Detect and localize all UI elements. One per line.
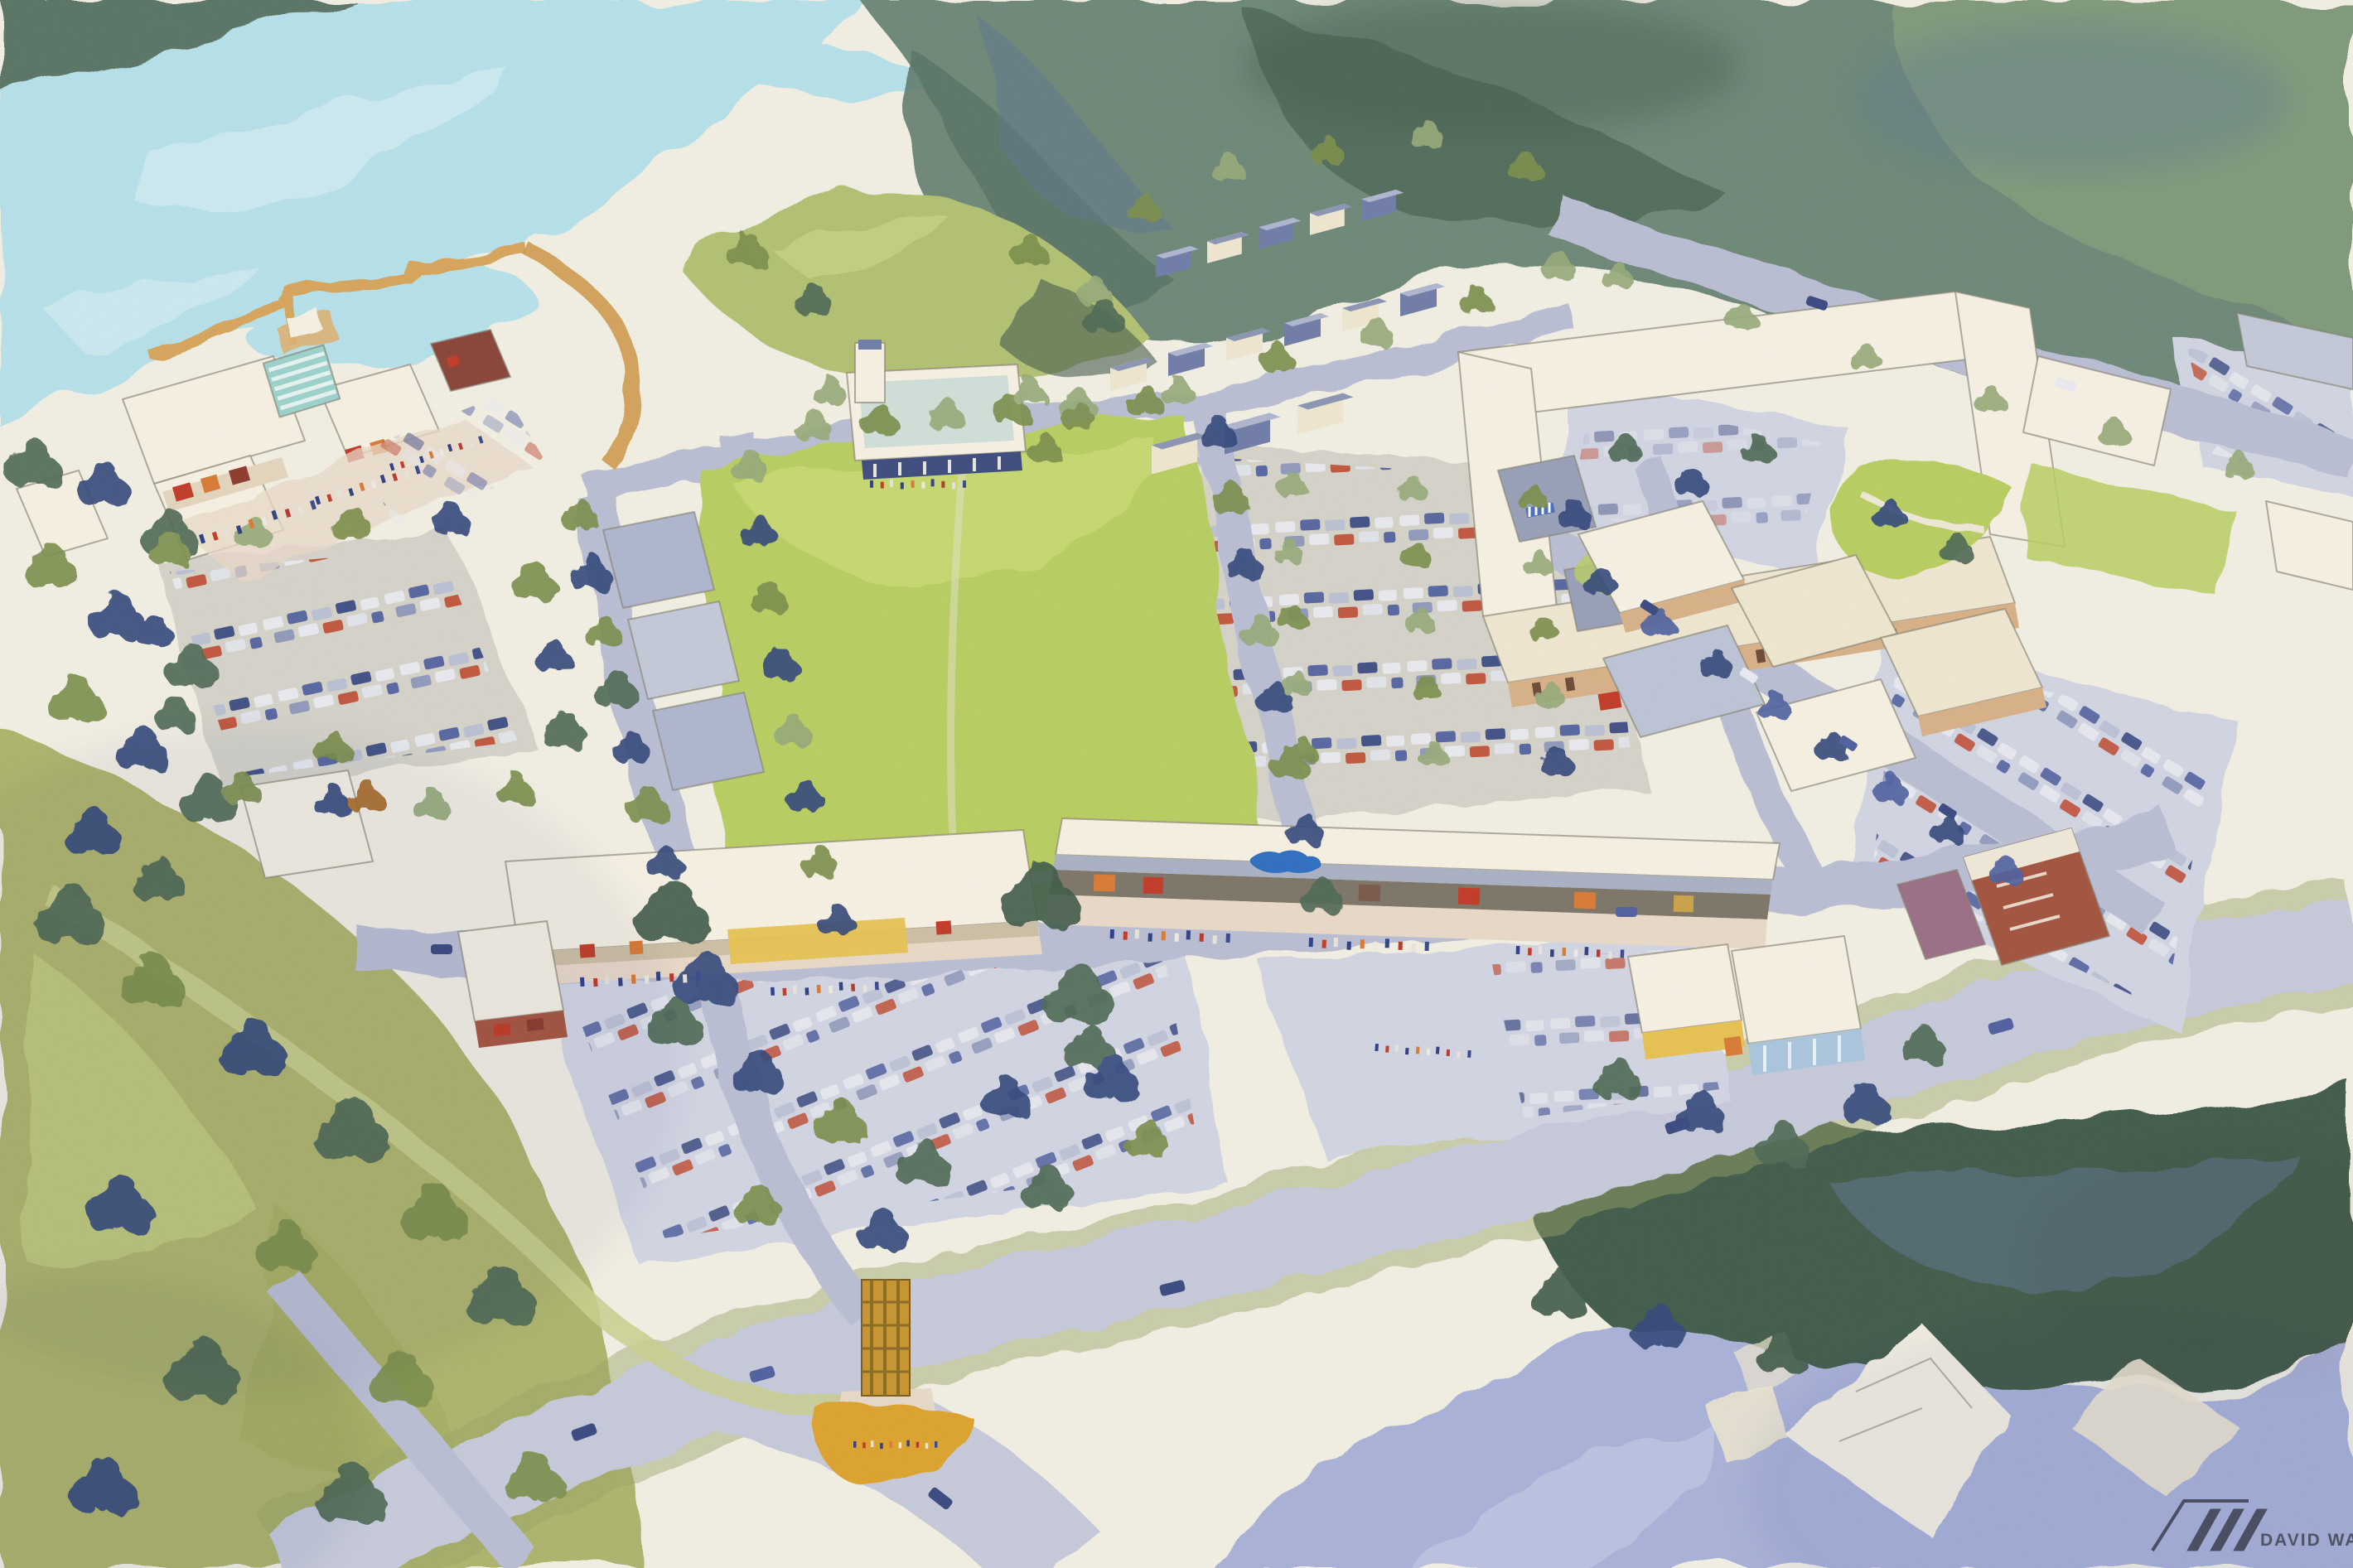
rendering-canvas: DAVID WALKER xyxy=(0,0,2353,1568)
paper-grain-overlay xyxy=(0,0,2353,1568)
artist-signature: DAVID WALKER xyxy=(2260,1531,2353,1550)
watercolor-masterplan-rendering: DAVID WALKER xyxy=(0,0,2353,1568)
